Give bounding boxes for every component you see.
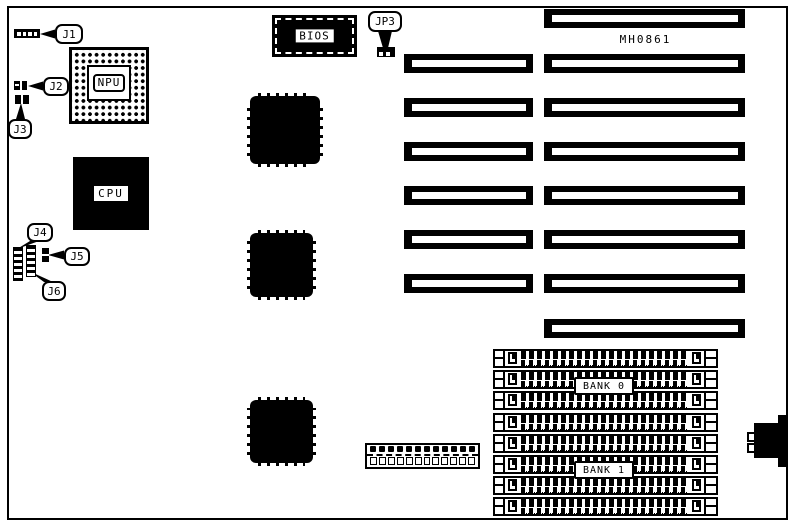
- jp3-pin-connector: [377, 47, 395, 57]
- j3-pin-connector: [15, 95, 29, 104]
- motherboard-diagram: J1 J2 J3 J4 J5 J6 JP3 NPU CPU BIOS MH086…: [0, 0, 792, 527]
- bank1-label: BANK 1: [574, 461, 634, 479]
- callout-leader-lines: [0, 0, 792, 527]
- j5-pin-connector: [42, 248, 49, 262]
- j1-pin-connector: [14, 29, 40, 38]
- j2-label: J2: [43, 77, 69, 96]
- j1-label: J1: [55, 24, 83, 44]
- j5-label: J5: [64, 247, 90, 266]
- bank0-label: BANK 0: [574, 377, 634, 395]
- j6-pin-header: [26, 245, 36, 277]
- jp3-label: JP3: [368, 11, 402, 32]
- j6-label: J6: [42, 281, 66, 301]
- j3-label: J3: [8, 119, 32, 139]
- j4-label: J4: [27, 223, 53, 242]
- j4-pin-header: [13, 247, 23, 281]
- j2-pin-connector: [14, 81, 27, 90]
